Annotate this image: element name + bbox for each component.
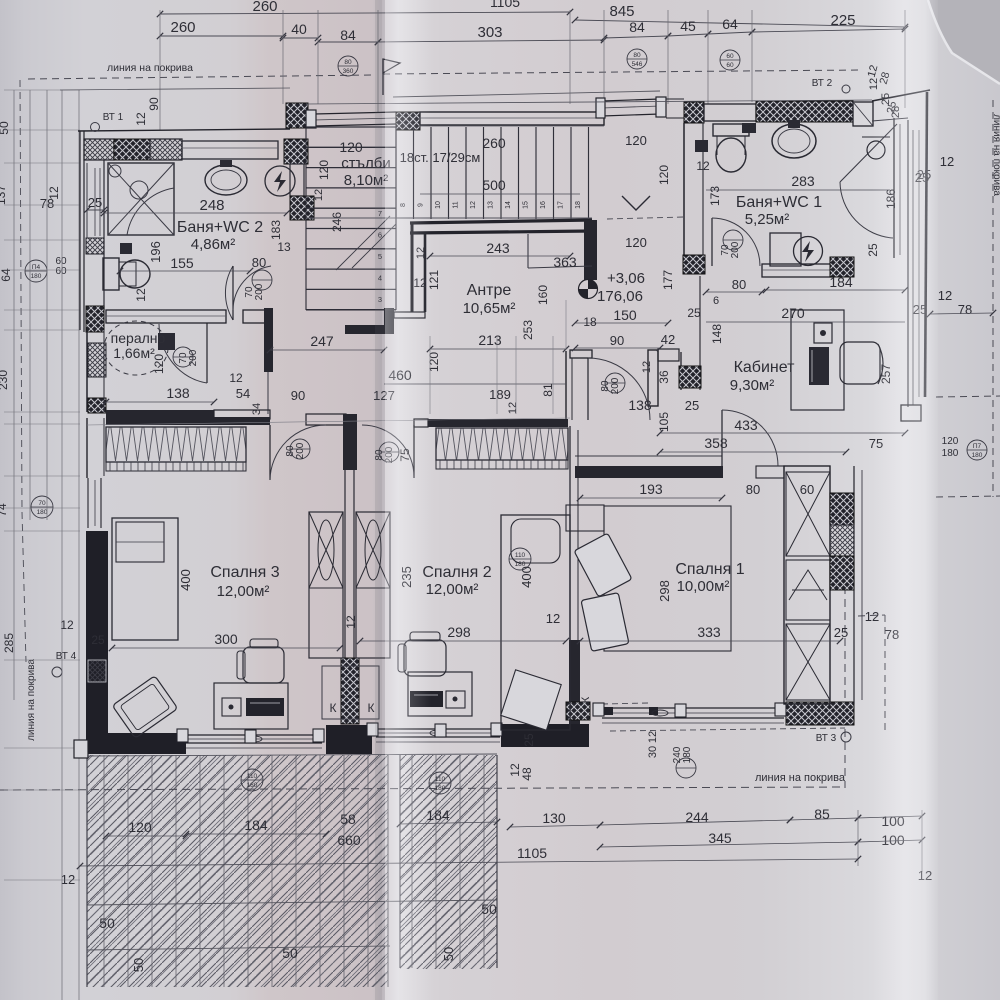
svg-text:50: 50 xyxy=(131,958,146,972)
svg-text:12: 12 xyxy=(344,615,358,629)
svg-text:260: 260 xyxy=(170,19,195,36)
svg-text:120: 120 xyxy=(942,436,959,447)
svg-text:130: 130 xyxy=(542,810,566,826)
svg-text:К: К xyxy=(580,696,592,703)
svg-text:17: 17 xyxy=(558,201,565,209)
svg-text:12: 12 xyxy=(546,611,560,626)
svg-text:12: 12 xyxy=(313,189,325,201)
svg-text:25: 25 xyxy=(91,633,105,647)
svg-text:345: 345 xyxy=(708,830,732,846)
svg-text:ВТ 1: ВТ 1 xyxy=(103,112,124,123)
svg-text:К: К xyxy=(368,701,375,715)
svg-text:120: 120 xyxy=(625,235,647,250)
svg-text:60: 60 xyxy=(726,53,734,60)
svg-text:25: 25 xyxy=(522,733,536,747)
svg-text:433: 433 xyxy=(734,417,758,433)
svg-text:184: 184 xyxy=(244,817,268,833)
svg-text:50: 50 xyxy=(441,947,456,961)
svg-text:перално: перално xyxy=(111,330,166,346)
svg-text:180: 180 xyxy=(37,509,48,516)
svg-text:74: 74 xyxy=(0,503,9,517)
svg-text:333: 333 xyxy=(697,624,721,640)
svg-text:400: 400 xyxy=(519,566,534,588)
svg-text:120: 120 xyxy=(625,133,647,148)
svg-text:363: 363 xyxy=(553,254,577,270)
svg-text:34: 34 xyxy=(251,403,263,415)
svg-text:12,00м²: 12,00м² xyxy=(217,583,270,600)
svg-text:1,66м²: 1,66м² xyxy=(113,345,155,361)
svg-text:12: 12 xyxy=(647,731,659,743)
svg-text:ВТ 4: ВТ 4 xyxy=(56,651,77,662)
svg-text:54: 54 xyxy=(236,386,250,401)
svg-text:177: 177 xyxy=(661,270,675,290)
svg-text:110: 110 xyxy=(435,776,446,783)
svg-text:243: 243 xyxy=(486,240,510,256)
svg-text:200: 200 xyxy=(254,283,265,300)
svg-text:12: 12 xyxy=(940,154,954,169)
svg-text:358: 358 xyxy=(704,435,728,451)
svg-text:36: 36 xyxy=(657,370,671,384)
svg-text:42: 42 xyxy=(661,332,675,347)
svg-text:248: 248 xyxy=(199,197,224,214)
svg-text:180: 180 xyxy=(515,561,526,568)
svg-text:138: 138 xyxy=(628,397,652,413)
svg-text:+3,06: +3,06 xyxy=(607,270,645,287)
svg-text:25: 25 xyxy=(834,625,848,640)
svg-text:200: 200 xyxy=(295,442,306,459)
svg-text:45: 45 xyxy=(680,18,696,34)
svg-text:80: 80 xyxy=(633,52,641,59)
svg-text:Баня+WC 2: Баня+WC 2 xyxy=(177,219,263,236)
svg-text:25: 25 xyxy=(687,306,701,320)
svg-text:60: 60 xyxy=(726,62,734,69)
svg-text:4,86м²: 4,86м² xyxy=(191,236,236,253)
svg-text:845: 845 xyxy=(609,3,634,20)
svg-text:9,30м²: 9,30м² xyxy=(730,377,775,394)
svg-text:180: 180 xyxy=(972,452,983,459)
svg-text:12: 12 xyxy=(60,618,74,632)
svg-text:110: 110 xyxy=(247,773,258,780)
svg-text:14: 14 xyxy=(505,201,512,209)
svg-text:50: 50 xyxy=(481,901,497,917)
svg-text:48: 48 xyxy=(520,767,534,781)
svg-text:Спалня 1: Спалня 1 xyxy=(675,561,744,578)
svg-text:60: 60 xyxy=(800,482,814,497)
svg-text:300: 300 xyxy=(214,631,238,647)
svg-text:84: 84 xyxy=(340,27,356,43)
svg-text:200: 200 xyxy=(610,377,621,394)
svg-text:90: 90 xyxy=(291,388,305,403)
svg-text:138: 138 xyxy=(166,385,190,401)
svg-text:15: 15 xyxy=(523,201,530,209)
svg-text:105: 105 xyxy=(657,412,671,432)
svg-text:500: 500 xyxy=(482,177,506,193)
svg-text:12,00м²: 12,00м² xyxy=(426,581,479,598)
svg-text:200: 200 xyxy=(188,349,199,366)
svg-text:Антре: Антре xyxy=(467,282,512,299)
svg-text:13: 13 xyxy=(277,240,291,254)
svg-text:10: 10 xyxy=(435,201,442,209)
svg-text:К: К xyxy=(330,701,337,715)
svg-text:12: 12 xyxy=(507,402,519,414)
svg-text:303: 303 xyxy=(477,24,502,41)
svg-text:230: 230 xyxy=(0,370,10,390)
svg-text:12: 12 xyxy=(938,288,952,303)
svg-text:25: 25 xyxy=(685,398,699,413)
svg-text:Баня+WC 1: Баня+WC 1 xyxy=(736,194,822,211)
svg-text:260: 260 xyxy=(482,135,506,151)
svg-text:298: 298 xyxy=(657,580,672,602)
svg-text:12: 12 xyxy=(470,201,477,209)
svg-text:40: 40 xyxy=(291,21,307,37)
svg-text:120: 120 xyxy=(128,819,152,835)
svg-text:12: 12 xyxy=(641,361,653,373)
svg-text:90: 90 xyxy=(147,97,161,111)
svg-text:173: 173 xyxy=(708,186,722,206)
svg-text:253: 253 xyxy=(521,320,535,340)
svg-text:120: 120 xyxy=(317,160,331,180)
svg-text:1105: 1105 xyxy=(490,0,520,10)
svg-text:110: 110 xyxy=(515,552,526,559)
svg-text:Кабинет: Кабинет xyxy=(734,359,796,376)
svg-text:12: 12 xyxy=(134,112,148,126)
svg-text:12: 12 xyxy=(696,159,710,173)
svg-text:12: 12 xyxy=(134,288,148,302)
svg-text:246: 246 xyxy=(330,212,344,232)
svg-text:12: 12 xyxy=(229,371,243,385)
svg-text:12: 12 xyxy=(61,872,75,887)
svg-text:137: 137 xyxy=(0,185,8,205)
svg-text:225: 225 xyxy=(830,12,855,29)
svg-text:180: 180 xyxy=(247,782,258,789)
svg-text:283: 283 xyxy=(791,173,815,189)
svg-text:линия на покрива: линия на покрива xyxy=(107,62,193,74)
svg-text:линия на покрива: линия на покрива xyxy=(26,659,37,741)
svg-text:10,65м²: 10,65м² xyxy=(463,300,516,317)
svg-text:80: 80 xyxy=(252,255,266,270)
svg-text:11: 11 xyxy=(453,201,460,208)
svg-text:120: 120 xyxy=(152,354,166,374)
svg-text:180: 180 xyxy=(31,273,42,280)
svg-text:ВТ 2: ВТ 2 xyxy=(812,78,833,89)
svg-text:180: 180 xyxy=(942,448,959,459)
svg-text:Спалня 2: Спалня 2 xyxy=(422,564,491,581)
svg-text:78: 78 xyxy=(958,302,972,317)
svg-text:64: 64 xyxy=(722,16,738,32)
svg-text:213: 213 xyxy=(478,332,502,348)
svg-text:546: 546 xyxy=(632,61,643,68)
svg-text:50: 50 xyxy=(0,121,11,135)
svg-text:50: 50 xyxy=(99,915,115,931)
svg-text:70: 70 xyxy=(38,500,46,507)
svg-text:270: 270 xyxy=(781,305,805,321)
svg-text:ВТ 3: ВТ 3 xyxy=(816,733,837,744)
svg-text:80: 80 xyxy=(344,59,352,66)
svg-text:120: 120 xyxy=(339,139,363,155)
svg-text:П7: П7 xyxy=(973,443,982,450)
svg-text:660: 660 xyxy=(337,832,361,848)
svg-text:189: 189 xyxy=(489,387,511,402)
svg-text:180: 180 xyxy=(435,785,446,792)
svg-text:60: 60 xyxy=(55,266,67,277)
svg-text:80: 80 xyxy=(746,482,760,497)
svg-text:50: 50 xyxy=(282,945,298,961)
svg-text:196: 196 xyxy=(148,241,163,263)
svg-text:30: 30 xyxy=(647,746,659,758)
svg-text:6: 6 xyxy=(713,295,719,307)
svg-text:150: 150 xyxy=(613,307,637,323)
svg-text:линия на покрива: линия на покрива xyxy=(755,772,846,784)
svg-text:16: 16 xyxy=(540,201,547,209)
svg-text:18: 18 xyxy=(575,201,582,209)
svg-text:80: 80 xyxy=(732,277,746,292)
svg-text:176,06: 176,06 xyxy=(597,288,643,305)
svg-text:линия на покрива: линия на покрива xyxy=(991,114,1000,196)
svg-text:84: 84 xyxy=(629,19,645,35)
svg-text:10,00м²: 10,00м² xyxy=(677,578,730,595)
svg-text:18: 18 xyxy=(583,315,597,329)
svg-text:160: 160 xyxy=(536,285,550,305)
svg-text:58: 58 xyxy=(340,811,356,827)
svg-text:298: 298 xyxy=(447,624,471,640)
svg-text:184: 184 xyxy=(829,274,853,290)
svg-text:5,25м²: 5,25м² xyxy=(745,211,790,228)
svg-text:Спалня 3: Спалня 3 xyxy=(210,564,279,581)
svg-text:247: 247 xyxy=(310,333,334,349)
svg-text:13: 13 xyxy=(488,201,495,209)
svg-text:183: 183 xyxy=(269,220,283,240)
svg-text:180: 180 xyxy=(682,746,693,763)
svg-text:155: 155 xyxy=(170,255,194,271)
svg-text:193: 193 xyxy=(639,481,663,497)
svg-text:90: 90 xyxy=(610,333,624,348)
svg-text:1105: 1105 xyxy=(517,845,547,861)
svg-text:148: 148 xyxy=(710,324,724,344)
svg-text:360: 360 xyxy=(343,68,354,75)
svg-text:400: 400 xyxy=(178,569,193,591)
svg-text:120: 120 xyxy=(657,165,671,185)
svg-text:260: 260 xyxy=(252,0,277,15)
